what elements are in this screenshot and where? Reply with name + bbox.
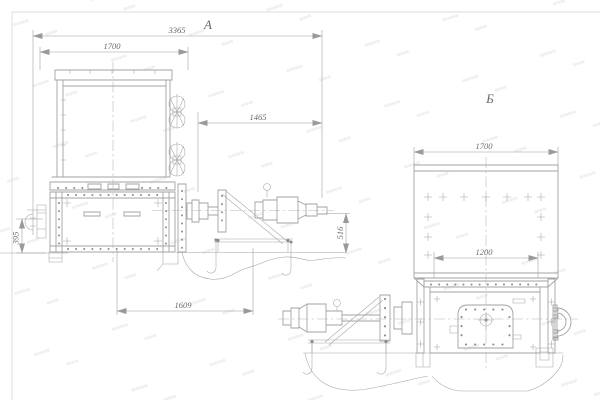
dim-value-overall: 3365 xyxy=(168,25,186,35)
dim-value-drive-length: 1465 xyxy=(250,112,267,122)
technical-drawing-canvas: А xyxy=(0,0,600,400)
rail-bolt-b xyxy=(310,340,313,343)
dim-value-body-width-a: 1700 xyxy=(104,41,122,51)
rail-bolt xyxy=(286,239,289,242)
drawing-sheet: А xyxy=(0,0,600,400)
dim-value-support-height: 395 xyxy=(11,232,21,246)
rail-bolt-b xyxy=(384,340,387,343)
watermark xyxy=(0,0,600,400)
view-b-label: Б xyxy=(485,91,494,106)
dim-value-body-width-b: 1700 xyxy=(476,141,494,151)
dim-value-foundation-span: 1609 xyxy=(175,300,193,310)
dim-value-opening-width: 1200 xyxy=(476,247,494,257)
anchor-bolt xyxy=(290,241,293,244)
dim-value-axis-height: 516 xyxy=(335,226,345,240)
anchor-bolt xyxy=(215,239,218,242)
view-a-label: А xyxy=(203,17,212,32)
